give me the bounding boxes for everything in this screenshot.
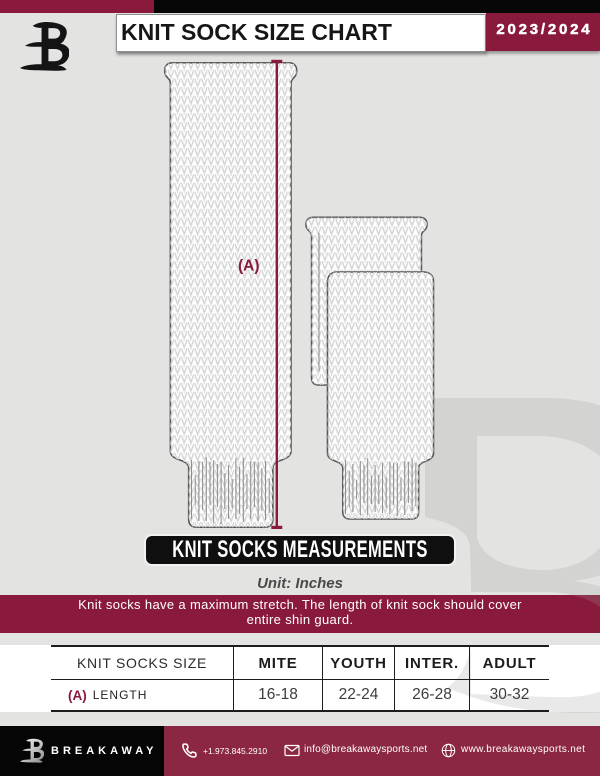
svg-text:(A): (A) (238, 258, 260, 275)
